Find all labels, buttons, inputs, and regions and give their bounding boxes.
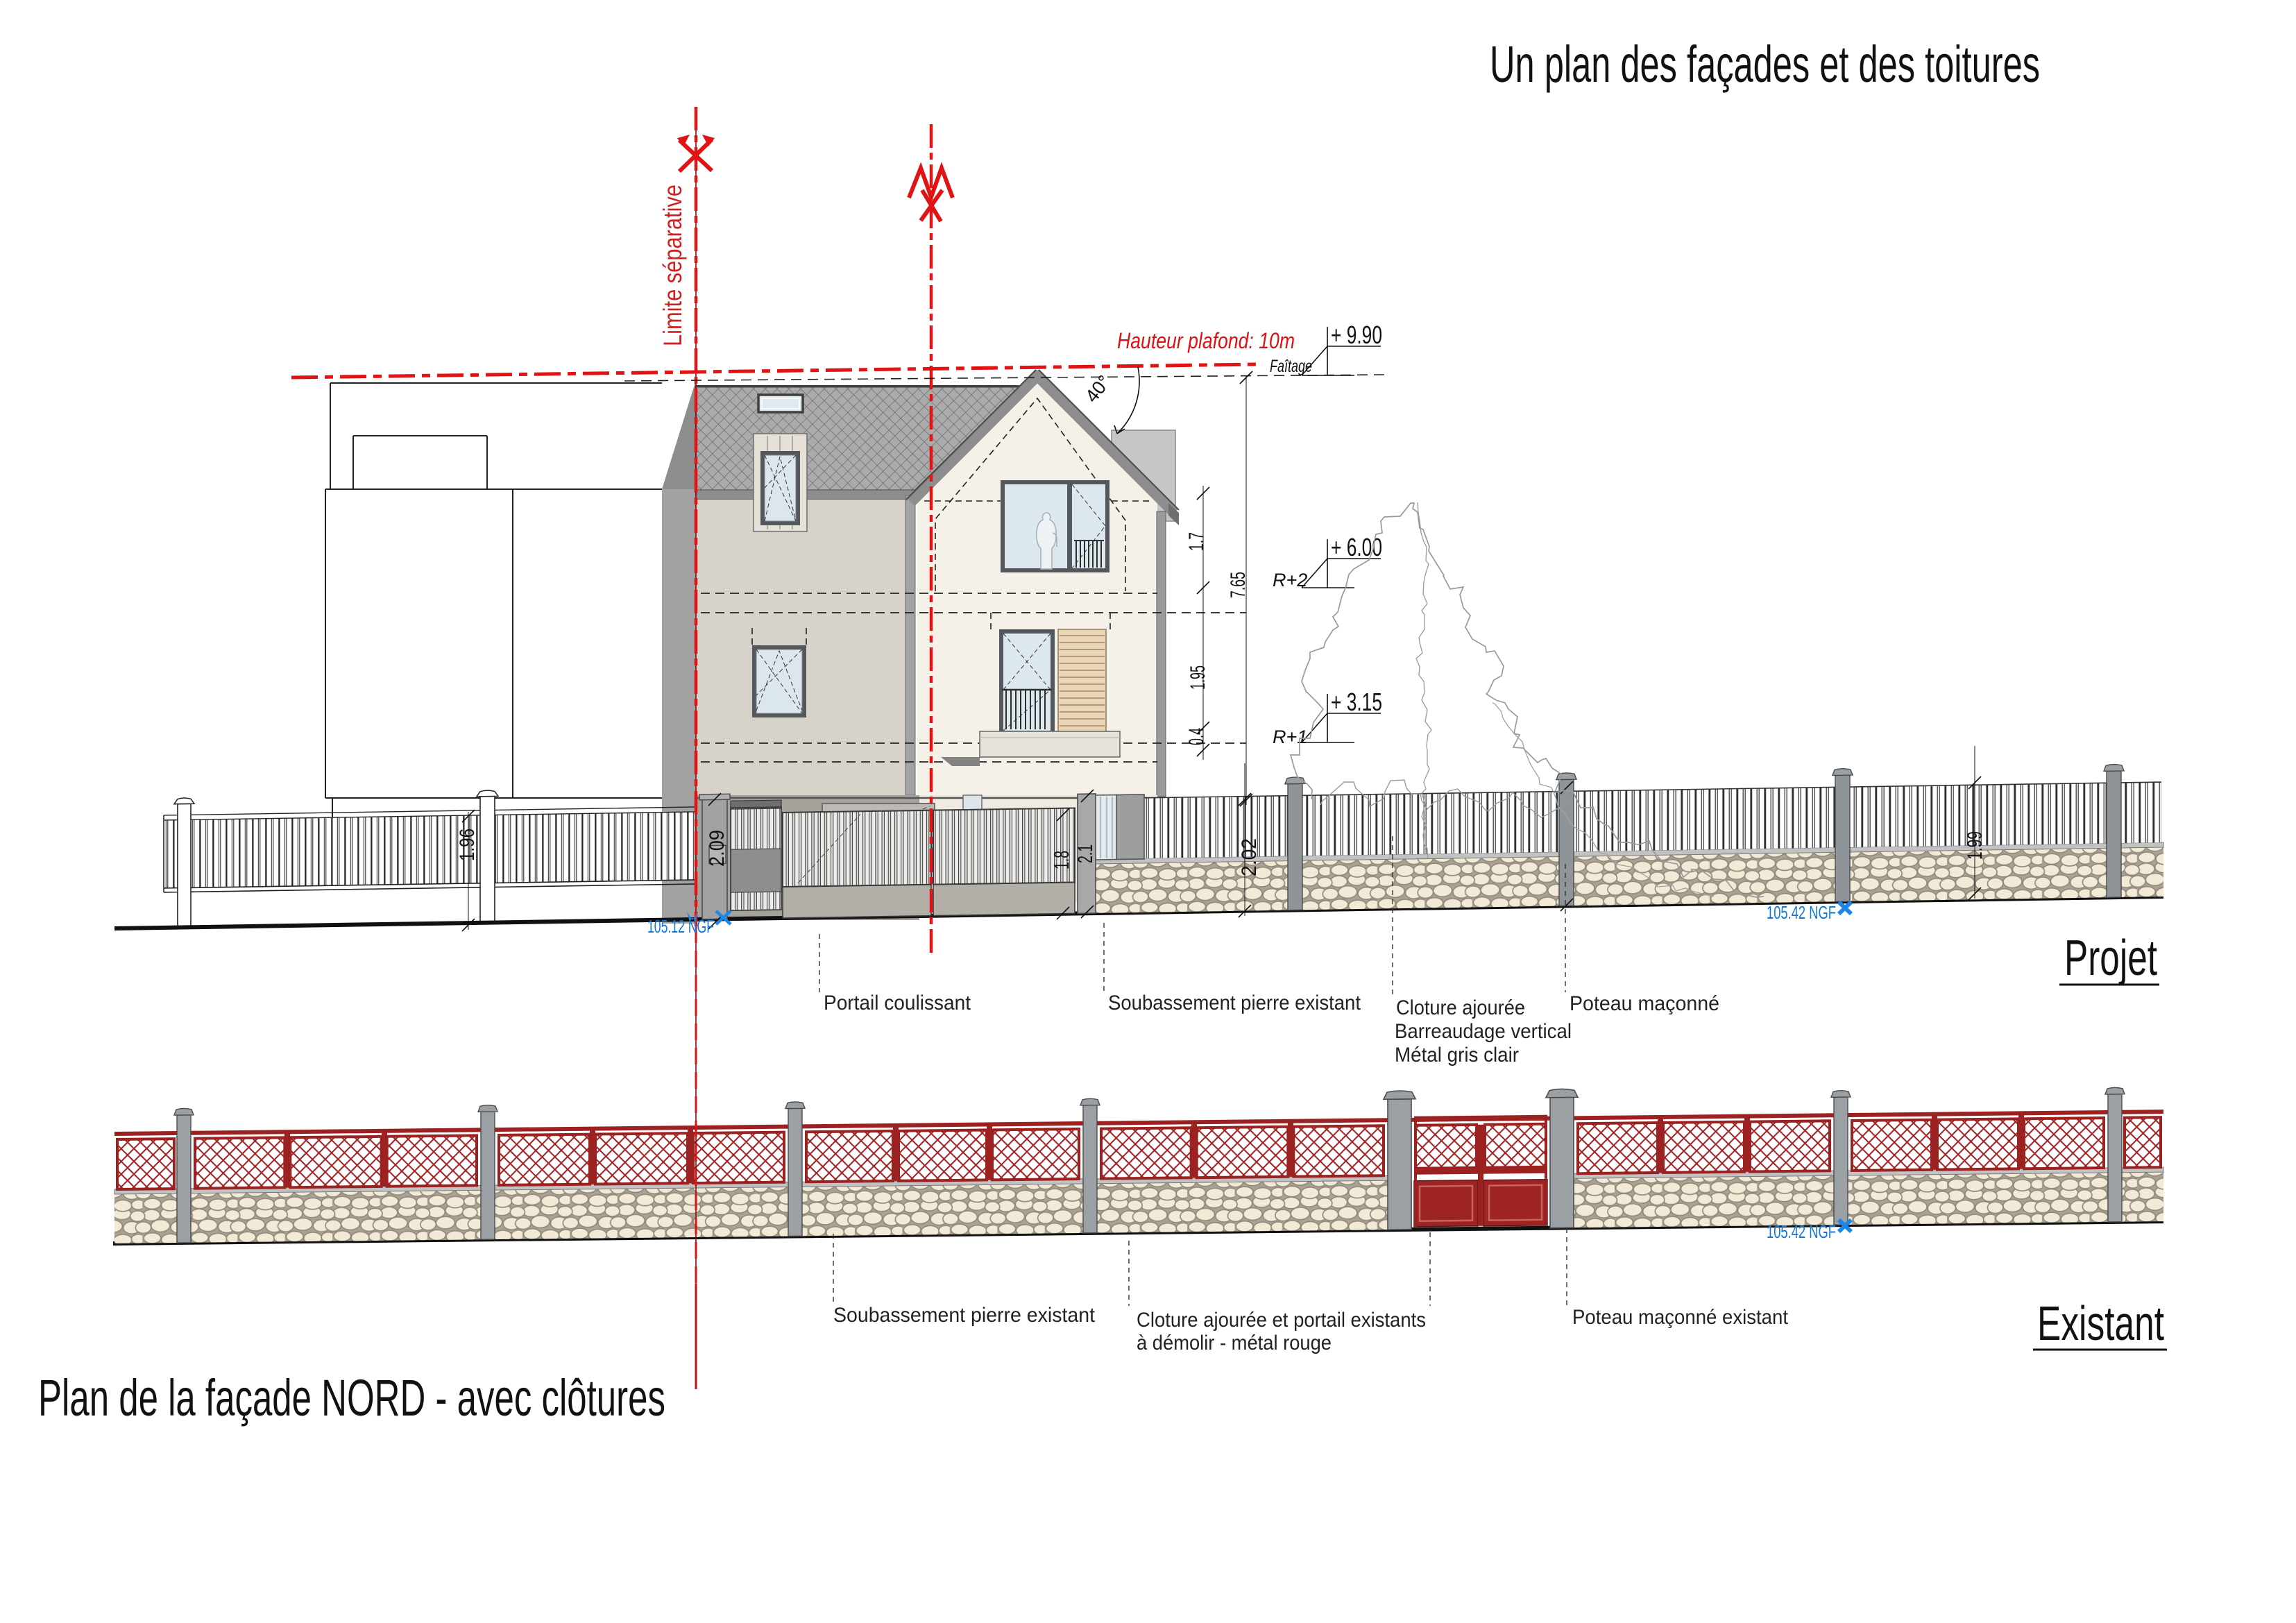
svg-text:Barreaudage vertical: Barreaudage vertical bbox=[1395, 1020, 1572, 1043]
svg-text:Faîtage: Faîtage bbox=[1270, 357, 1312, 376]
svg-text:1.7: 1.7 bbox=[1185, 532, 1208, 551]
svg-text:Soubassement pierre existant: Soubassement pierre existant bbox=[833, 1304, 1096, 1327]
svg-text:+ 3.15: + 3.15 bbox=[1331, 688, 1382, 716]
svg-text:Projet: Projet bbox=[2064, 931, 2157, 986]
svg-text:2.09: 2.09 bbox=[706, 830, 729, 867]
svg-text:Poteau maçonné existant: Poteau maçonné existant bbox=[1572, 1306, 1789, 1329]
svg-text:2.02: 2.02 bbox=[1238, 838, 1261, 876]
svg-text:Soubassement pierre existant: Soubassement pierre existant bbox=[1108, 992, 1361, 1014]
svg-text:Poteau maçonné: Poteau maçonné bbox=[1570, 992, 1719, 1015]
svg-text:Portail coulissant: Portail coulissant bbox=[824, 992, 971, 1014]
svg-text:1.99: 1.99 bbox=[1964, 831, 1987, 860]
svg-text:105.42 NGF: 105.42 NGF bbox=[1767, 902, 1836, 923]
svg-text:Cloture ajourée et portail exi: Cloture ajourée et portail existants bbox=[1137, 1309, 1426, 1332]
svg-text:Limite séparative: Limite séparative bbox=[658, 185, 687, 346]
svg-text:+ 9.90: + 9.90 bbox=[1331, 321, 1382, 349]
svg-text:Métal gris clair: Métal gris clair bbox=[1395, 1044, 1519, 1067]
svg-text:R+1: R+1 bbox=[1273, 726, 1307, 747]
svg-text:Hauteur plafond: 10m: Hauteur plafond: 10m bbox=[1117, 328, 1295, 353]
svg-text:2.1: 2.1 bbox=[1074, 844, 1097, 863]
svg-text:7.65: 7.65 bbox=[1227, 572, 1250, 598]
svg-text:105.42 NGF: 105.42 NGF bbox=[1767, 1221, 1836, 1242]
svg-text:1.96: 1.96 bbox=[456, 829, 479, 861]
svg-text:Un plan des façades et des toi: Un plan des façades et des toitures bbox=[1490, 35, 2040, 93]
svg-text:Existant: Existant bbox=[2037, 1296, 2164, 1350]
svg-text:0.4: 0.4 bbox=[1185, 728, 1208, 745]
svg-text:105.12 NGF: 105.12 NGF bbox=[647, 916, 714, 937]
svg-text:1.8: 1.8 bbox=[1051, 851, 1073, 869]
svg-text:1.95: 1.95 bbox=[1187, 665, 1209, 690]
svg-text:à démolir - métal rouge: à démolir - métal rouge bbox=[1137, 1332, 1332, 1354]
svg-text:Plan de la façade NORD - avec: Plan de la façade NORD - avec clôtures bbox=[38, 1369, 665, 1427]
svg-text:Cloture ajourée: Cloture ajourée bbox=[1396, 996, 1525, 1019]
svg-text:R+2: R+2 bbox=[1273, 570, 1307, 590]
svg-text:+ 6.00: + 6.00 bbox=[1331, 533, 1382, 561]
